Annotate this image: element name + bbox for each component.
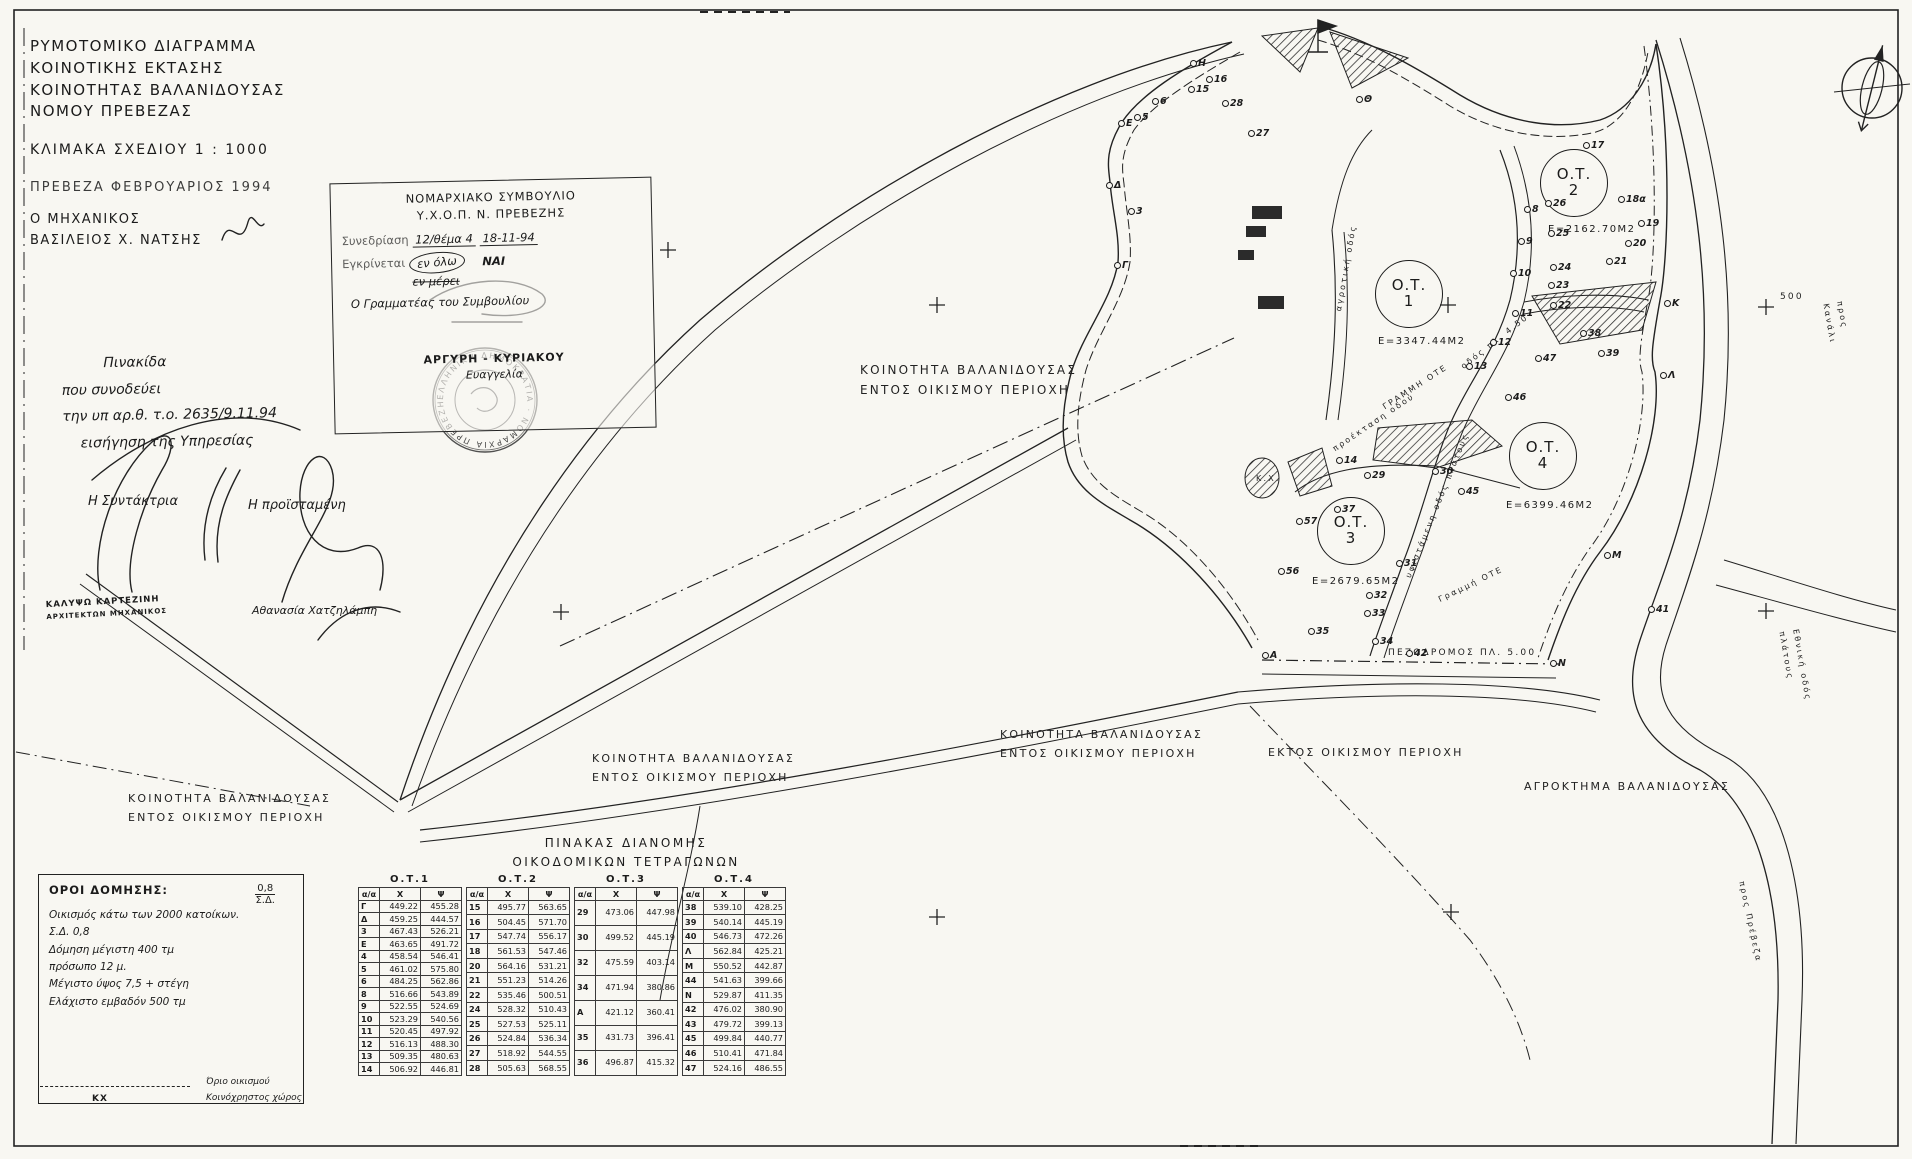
survey-point-marker (1206, 76, 1213, 83)
coord-row: 8516.66543.89 (359, 988, 462, 1001)
coord-cell: 547.46 (529, 944, 570, 959)
coord-cell: 518.92 (488, 1046, 529, 1061)
coord-row: Δ459.25444.57 (359, 913, 462, 926)
survey-point-number: 26 (1553, 198, 1566, 209)
coord-cell: 10 (359, 1013, 380, 1026)
coord-cell: 540.56 (421, 1013, 462, 1026)
coord-cell: 16 (467, 915, 488, 930)
survey-point-number: Α (1270, 650, 1277, 661)
coord-cell: 471.84 (745, 1046, 786, 1061)
survey-point-marker (1550, 264, 1557, 271)
survey-point-marker (1366, 592, 1373, 599)
survey-point-marker (1648, 606, 1655, 613)
coord-cell: 543.89 (421, 988, 462, 1001)
survey-point-marker (1356, 96, 1363, 103)
coord-row: 29473.06447.98 (575, 900, 678, 925)
coord-cell: 14 (359, 1063, 380, 1076)
survey-point-number: 46 (1513, 392, 1526, 403)
survey-point-marker (1664, 300, 1671, 307)
coord-cell: 360.41 (637, 1000, 678, 1025)
coord-row: 11520.45497.92 (359, 1025, 462, 1038)
coord-cell: Ε (359, 938, 380, 951)
survey-point: Δ (1106, 180, 1121, 191)
coord-row: Α421.12360.41 (575, 1000, 678, 1025)
survey-point-marker (1222, 100, 1229, 107)
survey-point-number: 32 (1374, 590, 1387, 601)
survey-point-number: Ε (1126, 118, 1133, 129)
survey-point: 17 (1583, 140, 1604, 151)
coord-col-header: Χ (596, 888, 637, 901)
map-label: ΕΚΤΟΣ ΟΙΚΙΣΜΟΥ ΠΕΡΙΟΧΗ (1268, 744, 1464, 763)
coord-cell: 539.10 (704, 900, 745, 915)
coord-cell: 34 (575, 975, 596, 1000)
coord-cell: 32 (575, 950, 596, 975)
coord-cell: 11 (359, 1025, 380, 1038)
coord-cell: 495.77 (488, 900, 529, 915)
coord-cell: 411.35 (745, 987, 786, 1002)
coord-cell: 43 (683, 1017, 704, 1032)
survey-point: 47 (1535, 353, 1556, 364)
survey-point: 46 (1505, 392, 1526, 403)
survey-point: 12 (1490, 337, 1511, 348)
survey-point-number: 14 (1344, 455, 1357, 466)
survey-point: 15 (1188, 84, 1209, 95)
survey-point-marker (1372, 638, 1379, 645)
coord-cell: 476.02 (704, 1002, 745, 1017)
coord-cell: 15 (467, 900, 488, 915)
terms-fraction-bottom: Σ.Δ. (255, 894, 275, 906)
coord-cell: 525.11 (529, 1017, 570, 1032)
coord-cell: 4 (359, 950, 380, 963)
survey-point-marker (1406, 650, 1413, 657)
survey-point-marker (1134, 114, 1141, 121)
coord-cell: 541.63 (704, 973, 745, 988)
coord-cell: 29 (575, 900, 596, 925)
block-area-label: Ε=3347.44Μ2 (1378, 336, 1466, 347)
survey-point: 13 (1466, 361, 1487, 372)
survey-point: 16 (1206, 74, 1227, 85)
coord-cell: 47 (683, 1060, 704, 1075)
block-number: 3 (1346, 531, 1357, 547)
map-label: Εθνική οδός πλάτους (1775, 628, 1821, 741)
survey-point-number: 11 (1520, 308, 1533, 319)
coord-table-Ο.Τ.2: Ο.Τ.2α/αΧΨ15495.77563.6516504.45571.7017… (466, 872, 570, 1076)
survey-point-marker (1618, 196, 1625, 203)
coord-table-group-name: Ο.Τ.2 (467, 872, 570, 888)
legend-kx: ΚΧ (92, 1094, 108, 1104)
survey-point: 31 (1396, 558, 1417, 569)
block-number: 1 (1404, 294, 1415, 310)
coord-row: 12516.13488.30 (359, 1038, 462, 1051)
terms-line: Σ.Δ. 0,8 (49, 924, 293, 941)
coord-cell: 556.17 (529, 929, 570, 944)
coord-row: 39540.14445.19 (683, 915, 786, 930)
coord-cell: 44 (683, 973, 704, 988)
map-label: ΚΟΙΝΟΤΗΤΑ ΒΑΛΑΝΙΔΟΥΣΑΣ ΕΝΤΟΣ ΟΙΚΙΣΜΟΥ ΠΕ… (860, 360, 1077, 401)
coord-cell: Α (575, 1000, 596, 1025)
survey-point-marker (1466, 363, 1473, 370)
coord-cell: 39 (683, 915, 704, 930)
survey-point-number: 20 (1633, 238, 1646, 249)
block-area-label: Ε=2679.65Μ2 (1312, 576, 1400, 587)
survey-point-number: 41 (1656, 604, 1669, 615)
coord-cell: 399.66 (745, 973, 786, 988)
survey-point-number: 24 (1558, 262, 1571, 273)
coord-cell: 431.73 (596, 1025, 637, 1050)
settlement-boundary-legend-line (40, 1086, 190, 1087)
coord-cell: 546.41 (421, 950, 462, 963)
survey-point-number: 38 (1588, 328, 1601, 339)
coord-cell: 425.21 (745, 944, 786, 959)
coord-cell: 467.43 (380, 925, 421, 938)
legend-line1: Όριο οικισμού (206, 1074, 302, 1090)
coord-row: 15495.77563.65 (467, 900, 570, 915)
survey-point-marker (1396, 560, 1403, 567)
survey-point: 19 (1638, 218, 1659, 229)
coord-cell: Δ (359, 913, 380, 926)
survey-point-number: 15 (1196, 84, 1209, 95)
survey-point-marker (1510, 270, 1517, 277)
coord-cell: 562.84 (704, 944, 745, 959)
coord-cell: 535.46 (488, 987, 529, 1002)
terms-fraction: 0,8 Σ.Δ. (255, 883, 275, 906)
survey-point-marker (1432, 468, 1439, 475)
coord-cell: 550.52 (704, 958, 745, 973)
coord-cell: 461.02 (380, 963, 421, 976)
legend-text: Όριο οικισμού Κοινόχρηστος χώρος (206, 1074, 302, 1106)
coord-row: 26524.84536.34 (467, 1031, 570, 1046)
coord-col-header: α/α (575, 888, 596, 901)
coord-row: 38539.10428.25 (683, 900, 786, 915)
survey-point-marker (1505, 394, 1512, 401)
coord-cell: 520.45 (380, 1025, 421, 1038)
coord-cell: 396.41 (637, 1025, 678, 1050)
coord-row: Μ550.52442.87 (683, 958, 786, 973)
coord-col-header: α/α (359, 888, 380, 901)
coord-cell: 506.92 (380, 1063, 421, 1076)
coord-table-Ο.Τ.1: Ο.Τ.1α/αΧΨΓ449.22455.28Δ459.25444.573467… (358, 872, 462, 1076)
survey-point-marker (1334, 506, 1341, 513)
coord-row: 27518.92544.55 (467, 1046, 570, 1061)
coord-cell: 499.84 (704, 1031, 745, 1046)
survey-point-number: 33 (1372, 608, 1385, 619)
coord-row: 10523.29540.56 (359, 1013, 462, 1026)
coord-cell: 421.12 (596, 1000, 637, 1025)
survey-point-number: 25 (1556, 228, 1569, 239)
map-label: ΚΟΙΝΟΤΗΤΑ ΒΑΛΑΝΙΔΟΥΣΑΣ ΕΝΤΟΣ ΟΙΚΙΣΜΟΥ ΠΕ… (1000, 726, 1203, 763)
coord-row: 28505.63568.55 (467, 1060, 570, 1075)
coord-cell: 444.57 (421, 913, 462, 926)
coord-col-header: α/α (467, 888, 488, 901)
survey-point: 30 (1432, 466, 1453, 477)
survey-point: 8 (1524, 204, 1539, 215)
survey-point: 10 (1510, 268, 1531, 279)
map-label: ΚΟΙΝΟΤΗΤΑ ΒΑΛΑΝΙΔΟΥΣΑΣ ΕΝΤΟΣ ΟΙΚΙΣΜΟΥ ΠΕ… (128, 790, 331, 827)
coord-cell: 496.87 (596, 1050, 637, 1075)
survey-point-number: 37 (1342, 504, 1355, 515)
survey-point-marker (1296, 518, 1303, 525)
survey-point: 56 (1278, 566, 1299, 577)
coord-cell: 564.16 (488, 958, 529, 973)
coord-cell: 575.80 (421, 963, 462, 976)
coord-table-title-line2: ΟΙΚΟΔΟΜΙΚΩΝ ΤΕΤΡΑΓΩΝΩΝ (436, 853, 816, 872)
coord-cell: 399.13 (745, 1017, 786, 1032)
survey-point: Λ (1660, 370, 1675, 381)
map-label: αγροτική οδός (1332, 224, 1361, 313)
survey-point: 33 (1364, 608, 1385, 619)
coord-cell: 526.21 (421, 925, 462, 938)
survey-point: 23 (1548, 280, 1569, 291)
survey-point-marker (1512, 310, 1519, 317)
survey-point-marker (1583, 142, 1590, 149)
survey-point: 25 (1548, 228, 1569, 239)
coord-cell: 445.19 (745, 915, 786, 930)
coord-row: 3467.43526.21 (359, 925, 462, 938)
survey-point-marker (1152, 98, 1159, 105)
coord-cell: Μ (683, 958, 704, 973)
map-label: Γραμμή ΟΤΕ (1436, 563, 1506, 606)
survey-point-number: Λ (1668, 370, 1675, 381)
coord-cell: 30 (575, 925, 596, 950)
coord-row: 20564.16531.21 (467, 958, 570, 973)
coord-cell: 17 (467, 929, 488, 944)
coord-cell: 27 (467, 1046, 488, 1061)
block-number: 2 (1569, 183, 1580, 199)
coord-col-header: Χ (704, 888, 745, 901)
coord-row: 44541.63399.66 (683, 973, 786, 988)
coord-row: 13509.35480.63 (359, 1050, 462, 1063)
survey-point-number: 35 (1316, 626, 1329, 637)
survey-point: 21 (1606, 256, 1627, 267)
survey-point-number: 6 (1160, 96, 1167, 107)
coord-row: 40546.73472.26 (683, 929, 786, 944)
survey-point-number: 27 (1256, 128, 1269, 139)
terms-line: Οικισμός κάτω των 2000 κατοίκων. (49, 907, 293, 924)
survey-point-number: Η (1198, 58, 1206, 69)
survey-point: 45 (1458, 486, 1479, 497)
survey-point-number: 39 (1606, 348, 1619, 359)
coord-row: Ν529.87411.35 (683, 987, 786, 1002)
coord-cell: 13 (359, 1050, 380, 1063)
coord-cell: 571.70 (529, 915, 570, 930)
coord-cell: 509.35 (380, 1050, 421, 1063)
survey-point-marker (1550, 302, 1557, 309)
coord-cell: 445.19 (637, 925, 678, 950)
survey-point: 57 (1296, 516, 1317, 527)
coord-cell: 488.30 (421, 1038, 462, 1051)
survey-point-number: Μ (1612, 550, 1621, 561)
coord-col-header: α/α (683, 888, 704, 901)
coord-col-header: Ψ (637, 888, 678, 901)
survey-point: Μ (1604, 550, 1621, 561)
coord-cell: 516.66 (380, 988, 421, 1001)
coord-cell: 531.21 (529, 958, 570, 973)
coordinate-tables: Ο.Τ.1α/αΧΨΓ449.22455.28Δ459.25444.573467… (358, 872, 786, 1076)
coord-cell: 415.32 (637, 1050, 678, 1075)
coord-row: Ε463.65491.72 (359, 938, 462, 951)
coord-cell: 18 (467, 944, 488, 959)
coord-row: 25527.53525.11 (467, 1017, 570, 1032)
survey-point-marker (1535, 355, 1542, 362)
survey-point: 14 (1336, 455, 1357, 466)
coord-row: 22535.46500.51 (467, 987, 570, 1002)
survey-point-number: 34 (1380, 636, 1393, 647)
survey-point-number: 3 (1136, 206, 1143, 217)
survey-point: 3 (1128, 206, 1143, 217)
survey-point-number: 22 (1558, 300, 1571, 311)
survey-point-marker (1190, 60, 1197, 67)
survey-point-number: 17 (1591, 140, 1604, 151)
survey-point: 41 (1648, 604, 1669, 615)
survey-point: 20 (1625, 238, 1646, 249)
coord-cell: 35 (575, 1025, 596, 1050)
survey-point-number: 23 (1556, 280, 1569, 291)
coord-cell: 12 (359, 1038, 380, 1051)
coord-row: 18561.53547.46 (467, 944, 570, 959)
survey-point-marker (1106, 182, 1113, 189)
coord-cell: 529.87 (704, 987, 745, 1002)
survey-point-marker (1336, 457, 1343, 464)
coord-cell: 540.14 (704, 915, 745, 930)
survey-point-marker (1262, 652, 1269, 659)
coord-row: 45499.84440.77 (683, 1031, 786, 1046)
coord-cell: 5 (359, 963, 380, 976)
coord-col-header: Χ (488, 888, 529, 901)
coord-row: Λ562.84425.21 (683, 944, 786, 959)
coord-table-Ο.Τ.4: Ο.Τ.4α/αΧΨ38539.10428.2539540.14445.1940… (682, 872, 786, 1076)
terms-line: Ελάχιστο εμβαδόν 500 τμ (49, 994, 293, 1011)
survey-point-number: 42 (1414, 648, 1427, 659)
coord-cell: 505.63 (488, 1060, 529, 1075)
survey-point: Α (1262, 650, 1277, 661)
coord-col-header: Ψ (421, 888, 462, 901)
survey-point-marker (1606, 258, 1613, 265)
map-label: ΚΟΙΝΟΤΗΤΑ ΒΑΛΑΝΙΔΟΥΣΑΣ ΕΝΤΟΣ ΟΙΚΙΣΜΟΥ ΠΕ… (592, 750, 795, 787)
survey-point-marker (1364, 472, 1371, 479)
survey-point: Ε (1118, 118, 1133, 129)
coord-cell: 504.45 (488, 915, 529, 930)
coord-cell: 524.84 (488, 1031, 529, 1046)
survey-point: 9 (1518, 236, 1533, 247)
survey-point-number: 16 (1214, 74, 1227, 85)
coord-row: 21551.23514.26 (467, 973, 570, 988)
coord-row: 47524.16486.55 (683, 1060, 786, 1075)
survey-point: 26 (1545, 198, 1566, 209)
coord-cell: 484.25 (380, 975, 421, 988)
coord-cell: 440.77 (745, 1031, 786, 1046)
coord-table-title: ΠΙΝΑΚΑΣ ΔΙΑΝΟΜΗΣ ΟΙΚΟΔΟΜΙΚΩΝ ΤΕΤΡΑΓΩΝΩΝ (436, 834, 816, 872)
survey-point: Η (1190, 58, 1206, 69)
coord-cell: 551.23 (488, 973, 529, 988)
survey-point-marker (1548, 282, 1555, 289)
legend-line2: Κοινόχρηστος χώρος (206, 1090, 302, 1106)
coord-cell: 459.25 (380, 913, 421, 926)
coord-col-header: Χ (380, 888, 421, 901)
survey-point: 39 (1598, 348, 1619, 359)
terms-line: Μέγιστο ύψος 7,5 + στέγη (49, 976, 293, 993)
map-label: προέκταση οδού (1330, 390, 1418, 455)
coord-cell: 514.26 (529, 973, 570, 988)
survey-point-number: 29 (1372, 470, 1385, 481)
coord-row: 16504.45571.70 (467, 915, 570, 930)
survey-point: 22 (1550, 300, 1571, 311)
coord-table-group-name: Ο.Τ.3 (575, 872, 678, 888)
survey-point-number: 28 (1230, 98, 1243, 109)
coord-table-title-line1: ΠΙΝΑΚΑΣ ΔΙΑΝΟΜΗΣ (436, 834, 816, 853)
coord-row: 4458.54546.41 (359, 950, 462, 963)
coord-row: 43479.72399.13 (683, 1017, 786, 1032)
coord-row: 46510.41471.84 (683, 1046, 786, 1061)
survey-point-marker (1490, 339, 1497, 346)
coord-cell: 510.41 (704, 1046, 745, 1061)
block-area-label: Ε=6399.46Μ2 (1506, 500, 1594, 511)
coord-row: 9522.55524.69 (359, 1000, 462, 1013)
coord-cell: 497.92 (421, 1025, 462, 1038)
survey-point-marker (1598, 350, 1605, 357)
survey-point-marker (1604, 552, 1611, 559)
coord-cell: Γ (359, 900, 380, 913)
coord-cell: 523.29 (380, 1013, 421, 1026)
coord-cell: 499.52 (596, 925, 637, 950)
coord-cell: 546.73 (704, 929, 745, 944)
survey-point: 24 (1550, 262, 1571, 273)
coord-cell: 524.69 (421, 1000, 462, 1013)
coord-cell: 38 (683, 900, 704, 915)
coord-cell: Λ (683, 944, 704, 959)
survey-point-number: 56 (1286, 566, 1299, 577)
coord-table-group-name: Ο.Τ.1 (359, 872, 462, 888)
survey-point: 32 (1366, 590, 1387, 601)
coord-row: 34471.94380.86 (575, 975, 678, 1000)
survey-point-number: 10 (1518, 268, 1531, 279)
survey-point-number: 13 (1474, 361, 1487, 372)
coord-cell: 527.53 (488, 1017, 529, 1032)
coord-cell: 446.81 (421, 1063, 462, 1076)
coord-cell: 442.87 (745, 958, 786, 973)
coord-cell: 380.90 (745, 1002, 786, 1017)
map-label: προς Πρέβεζα (1735, 880, 1766, 964)
terms-line: Δόμηση μέγιστη 400 τμ (49, 942, 293, 959)
coord-cell: 3 (359, 925, 380, 938)
survey-point: Γ (1114, 260, 1128, 271)
coord-cell: 563.65 (529, 900, 570, 915)
coord-cell: 20 (467, 958, 488, 973)
coord-cell: 9 (359, 1000, 380, 1013)
terms-fraction-top: 0,8 (255, 883, 275, 894)
survey-point: 18α (1618, 194, 1646, 205)
survey-point-marker (1625, 240, 1632, 247)
survey-point-marker (1638, 220, 1645, 227)
survey-point-marker (1188, 86, 1195, 93)
survey-point-number: 19 (1646, 218, 1659, 229)
coord-cell: 475.59 (596, 950, 637, 975)
map-label: προς Κανάλι (1819, 300, 1857, 370)
coord-cell: 463.65 (380, 938, 421, 951)
survey-point-marker (1278, 568, 1285, 575)
coord-cell: 471.94 (596, 975, 637, 1000)
coord-cell: 45 (683, 1031, 704, 1046)
coord-row: 30499.52445.19 (575, 925, 678, 950)
survey-point: 34 (1372, 636, 1393, 647)
survey-point-marker (1518, 238, 1525, 245)
survey-point-number: 31 (1404, 558, 1417, 569)
coord-cell: 21 (467, 973, 488, 988)
coord-row: 35431.73396.41 (575, 1025, 678, 1050)
survey-point: Κ (1664, 298, 1679, 309)
coord-cell: 428.25 (745, 900, 786, 915)
coord-cell: 544.55 (529, 1046, 570, 1061)
survey-point: 28 (1222, 98, 1243, 109)
